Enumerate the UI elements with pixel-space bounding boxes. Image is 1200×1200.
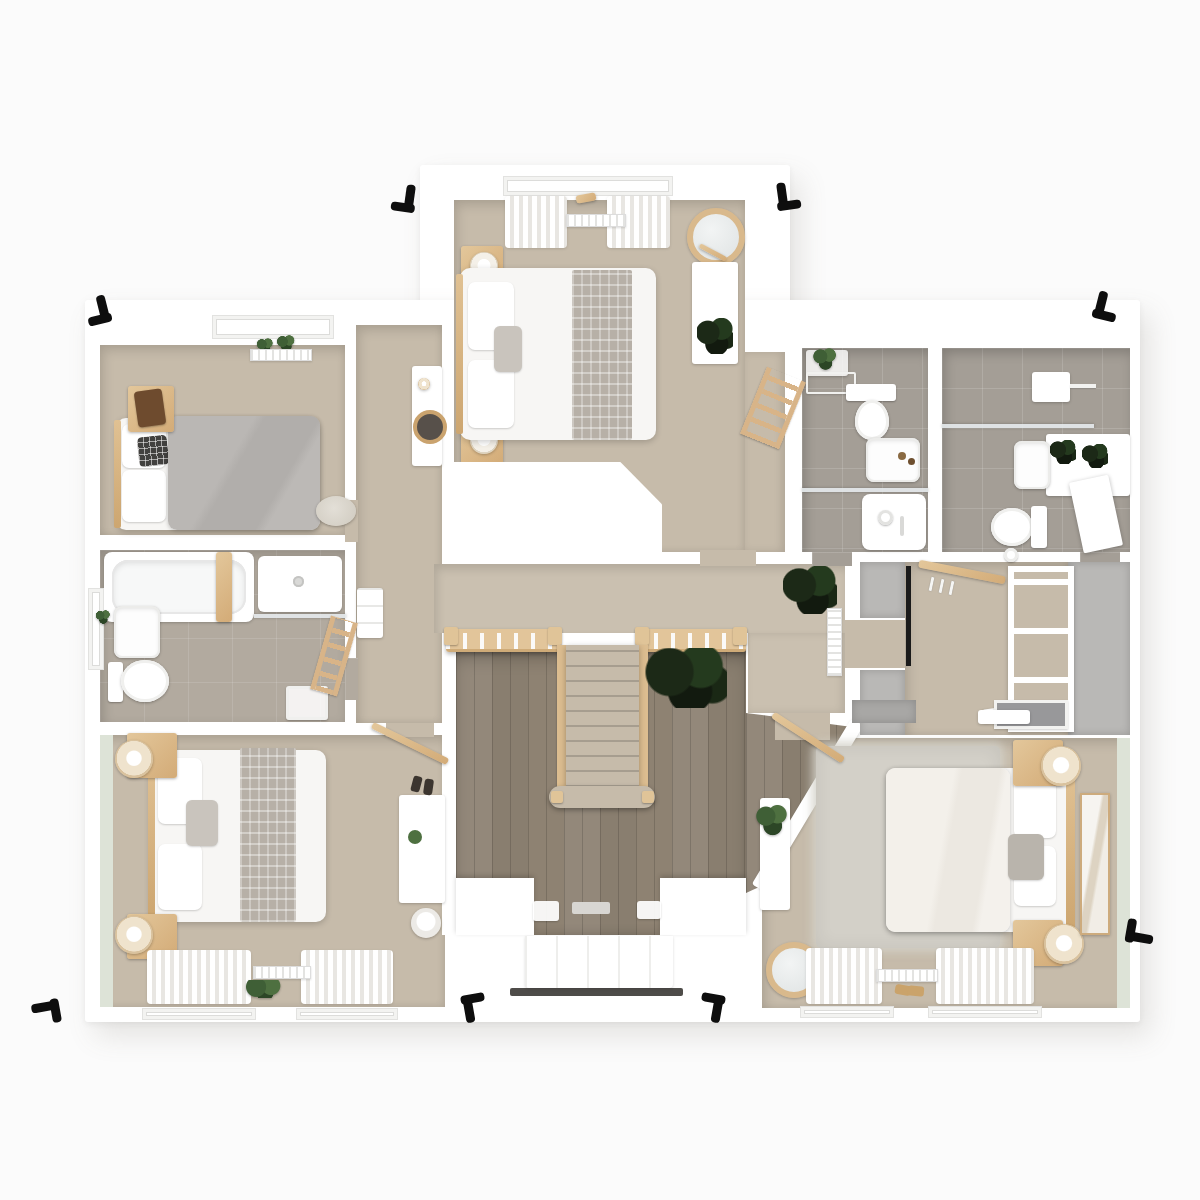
floating-shelf [978,710,1030,724]
washbasin-family [114,606,160,658]
toiletry-bottle [898,452,906,460]
newel-post [444,627,458,645]
console-lamp [418,378,430,390]
shower-head [878,510,893,525]
wardrobe-block-tall [1068,562,1130,735]
newel-post-bottom [642,791,654,803]
headboard [148,754,155,918]
shower-head-plate [1032,372,1070,402]
pillow [158,844,202,910]
radiator-bedroom-top [566,214,626,227]
slippers [908,985,925,996]
newel-post [733,627,747,645]
downpipe-icon [458,990,489,1024]
console-plant-br [755,804,789,836]
cream-duvet [886,768,1010,932]
desk [399,795,445,903]
front-door-below [525,936,673,988]
table-lamp [1041,746,1081,786]
radiator-br [876,969,938,982]
wardrobe-block [860,562,905,618]
floor-plant-bl [242,980,286,998]
toiletry-bottle [908,458,915,465]
throw-cushion [1008,834,1044,880]
curtail-step [549,786,655,808]
downpipe-icon [30,996,64,1027]
floor-plan-render [0,0,1200,1200]
washbasin-right [1014,441,1050,489]
headboard [456,274,463,434]
shower-wand [900,516,904,536]
downpipe-icon [698,990,729,1024]
throw-cushion [494,326,522,372]
window-bl [142,1008,256,1020]
shower-drain [293,576,304,587]
curtains-bl-left [147,950,251,1004]
plant-alocasia [783,566,837,614]
toilet-roll [1004,548,1018,562]
downpipe-icon [772,180,802,213]
newel-post [548,627,562,645]
hall-runner [572,902,610,914]
toilet-bowl-right [991,508,1033,546]
pouf [316,496,356,526]
balustrade-left [446,629,560,652]
headboard [114,420,121,528]
vanity-plant [1082,444,1108,468]
stair-stringer-left [557,645,566,789]
door-opening-bathroom-mid [812,552,852,566]
plant-console [697,318,733,354]
downpipe-icon [1122,918,1156,949]
window-plant-bath [95,610,111,624]
window-bedroom-left [212,315,334,339]
downpipe-icon [390,182,420,215]
leaning-artwork [1080,793,1110,935]
doormat [637,901,661,919]
vanity-plant [1050,440,1076,464]
door-opening-bedroom-top [700,550,756,566]
desk-chair [411,908,441,938]
desk-plant [408,830,422,844]
drawer-cabinet [357,588,383,638]
shower-tray-mid [862,494,926,550]
door-threshold [510,988,683,996]
shower-arm [1070,384,1096,388]
mirror-strip [906,566,911,666]
curtains-bl-right [301,950,393,1004]
radiator-landing [827,608,842,676]
knit-pillow [137,435,170,468]
pillow [1014,778,1056,838]
bed-runner [240,748,296,922]
throw-cushion [186,800,218,846]
newel-post [635,627,649,645]
radiator-bl [253,966,311,979]
door-opening-dressing [845,620,905,668]
table-lamp [115,916,153,954]
ground-wall-right [660,878,746,935]
shower-glass-right [942,424,1094,428]
window-bathroom-left [88,588,104,670]
gray-duvet [168,416,320,530]
window-br [928,1006,1042,1018]
window-bl [296,1008,398,1020]
toilet-tank-right [1031,506,1047,548]
staircase [566,645,639,787]
bath-caddy [216,552,232,622]
radiator-bedroom-left [250,349,312,361]
door-opening-bathroom-left [345,658,358,700]
toilet-tank-mid [846,384,896,401]
bed-runner [572,270,632,440]
toilet-bowl-family [121,660,169,702]
table-lamp [1044,924,1084,964]
shower-glass-mid [802,488,928,492]
curtains-br-left [806,948,882,1004]
pillow [122,470,166,522]
ground-wall-left [456,878,534,935]
ground-floor-plant [645,648,727,708]
stair-bulkhead [454,462,662,552]
toilet-bowl-mid [855,400,889,440]
shelf-plant [812,348,838,370]
curtains-br-right [936,948,1034,1004]
round-mirror-dark [413,410,447,444]
headboard [1066,770,1075,930]
throw-blanket [134,388,167,428]
table-lamp [115,740,153,778]
window-br [800,1006,894,1018]
wardrobe-top [852,700,916,723]
curtains-bedroom-top-left [505,196,567,248]
newel-post-bottom [551,791,563,803]
doormat [533,901,559,921]
